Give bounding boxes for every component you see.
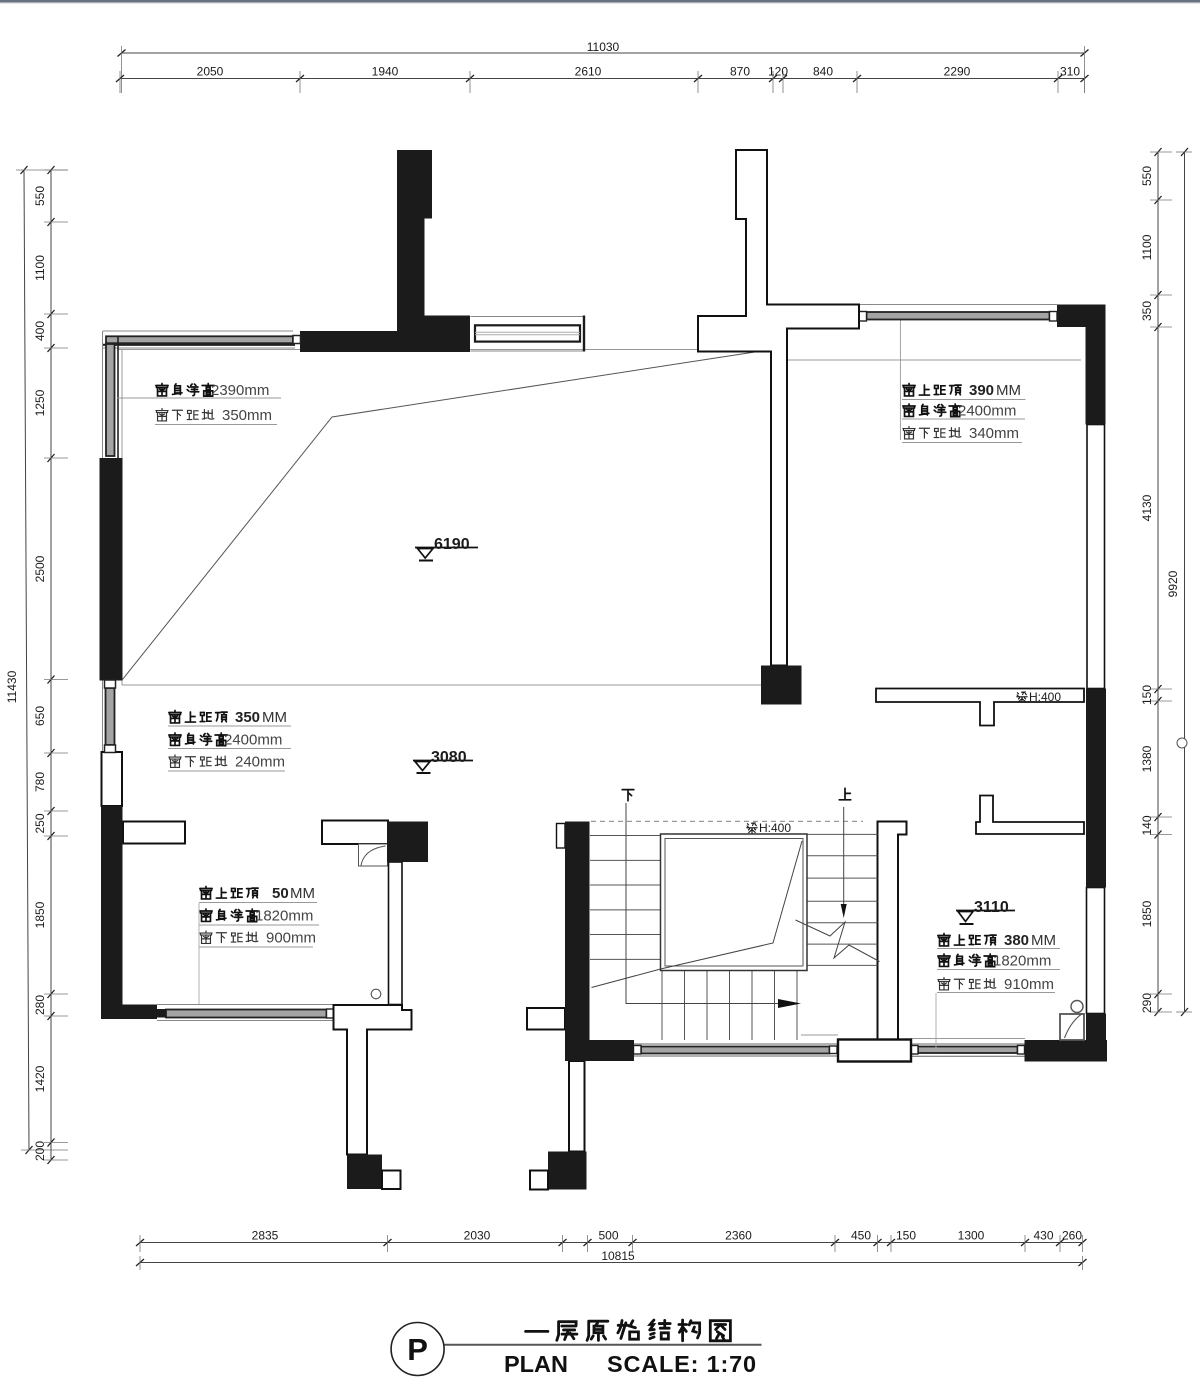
svg-text:140: 140: [1140, 815, 1154, 835]
svg-text:550: 550: [1140, 166, 1154, 186]
svg-text:H:400: H:400: [1029, 690, 1061, 704]
svg-text:3110: 3110: [974, 899, 1009, 916]
svg-text:2360: 2360: [725, 1229, 752, 1243]
svg-text:10815: 10815: [601, 1249, 635, 1263]
svg-text:380: 380: [1004, 932, 1029, 949]
svg-text:280: 280: [33, 995, 47, 1015]
svg-text:MM: MM: [262, 709, 287, 726]
svg-text:250: 250: [33, 813, 47, 833]
svg-text:1100: 1100: [1140, 234, 1154, 260]
svg-text:200: 200: [33, 1141, 47, 1161]
svg-text:1940: 1940: [372, 65, 399, 79]
svg-text:350mm: 350mm: [222, 407, 272, 424]
svg-text:2050: 2050: [197, 65, 224, 79]
svg-text:MM: MM: [996, 382, 1021, 399]
svg-text:550: 550: [33, 186, 47, 206]
svg-text:840: 840: [813, 65, 833, 79]
svg-text:650: 650: [33, 706, 47, 726]
svg-text:2500: 2500: [33, 555, 47, 582]
svg-text:1850: 1850: [1140, 900, 1154, 927]
svg-text:1100: 1100: [33, 255, 47, 281]
svg-text:150: 150: [896, 1229, 916, 1243]
svg-text:1420: 1420: [33, 1065, 47, 1092]
svg-text:1250: 1250: [33, 389, 47, 416]
svg-text:2030: 2030: [464, 1229, 491, 1243]
svg-text:870: 870: [730, 65, 750, 79]
svg-text:780: 780: [33, 772, 47, 792]
svg-text:50: 50: [272, 885, 289, 902]
svg-text:350: 350: [1140, 301, 1154, 321]
svg-text:390: 390: [969, 382, 994, 399]
svg-text:SCALE: 1:70: SCALE: 1:70: [607, 1351, 757, 1377]
svg-text:340mm: 340mm: [969, 425, 1019, 442]
svg-text:450: 450: [851, 1229, 871, 1243]
svg-text:500: 500: [598, 1229, 618, 1243]
svg-text:9920: 9920: [1166, 570, 1180, 597]
svg-text:2390mm: 2390mm: [211, 382, 269, 399]
svg-text:400: 400: [33, 321, 47, 341]
svg-text:6190: 6190: [434, 536, 470, 553]
svg-text:MM: MM: [290, 885, 315, 902]
svg-text:1850: 1850: [33, 901, 47, 928]
svg-text:120: 120: [768, 65, 788, 79]
svg-text:910mm: 910mm: [1004, 976, 1054, 993]
svg-text:1300: 1300: [958, 1229, 985, 1243]
svg-text:260: 260: [1062, 1229, 1082, 1243]
svg-text:11030: 11030: [587, 40, 620, 54]
svg-text:290: 290: [1140, 993, 1154, 1013]
svg-text:1820mm: 1820mm: [993, 953, 1051, 970]
svg-text:MM: MM: [1031, 932, 1056, 949]
svg-text:2290: 2290: [944, 65, 971, 79]
svg-text:PLAN: PLAN: [504, 1351, 568, 1377]
svg-text:H:400: H:400: [759, 821, 791, 835]
svg-text:P: P: [407, 1332, 428, 1367]
svg-text:240mm: 240mm: [235, 754, 285, 771]
svg-text:2400mm: 2400mm: [224, 732, 282, 749]
svg-text:2835: 2835: [252, 1229, 279, 1243]
svg-text:11430: 11430: [5, 670, 19, 703]
svg-text:350: 350: [235, 709, 260, 726]
svg-text:3080: 3080: [431, 749, 467, 766]
svg-text:2400mm: 2400mm: [958, 403, 1016, 420]
svg-text:1380: 1380: [1140, 745, 1154, 772]
svg-text:4130: 4130: [1140, 494, 1154, 521]
svg-text:1820mm: 1820mm: [255, 908, 313, 925]
svg-text:430: 430: [1033, 1229, 1053, 1243]
svg-text:150: 150: [1140, 685, 1154, 705]
svg-text:900mm: 900mm: [266, 930, 316, 947]
svg-text:310: 310: [1060, 65, 1080, 79]
svg-text:2610: 2610: [575, 65, 602, 79]
